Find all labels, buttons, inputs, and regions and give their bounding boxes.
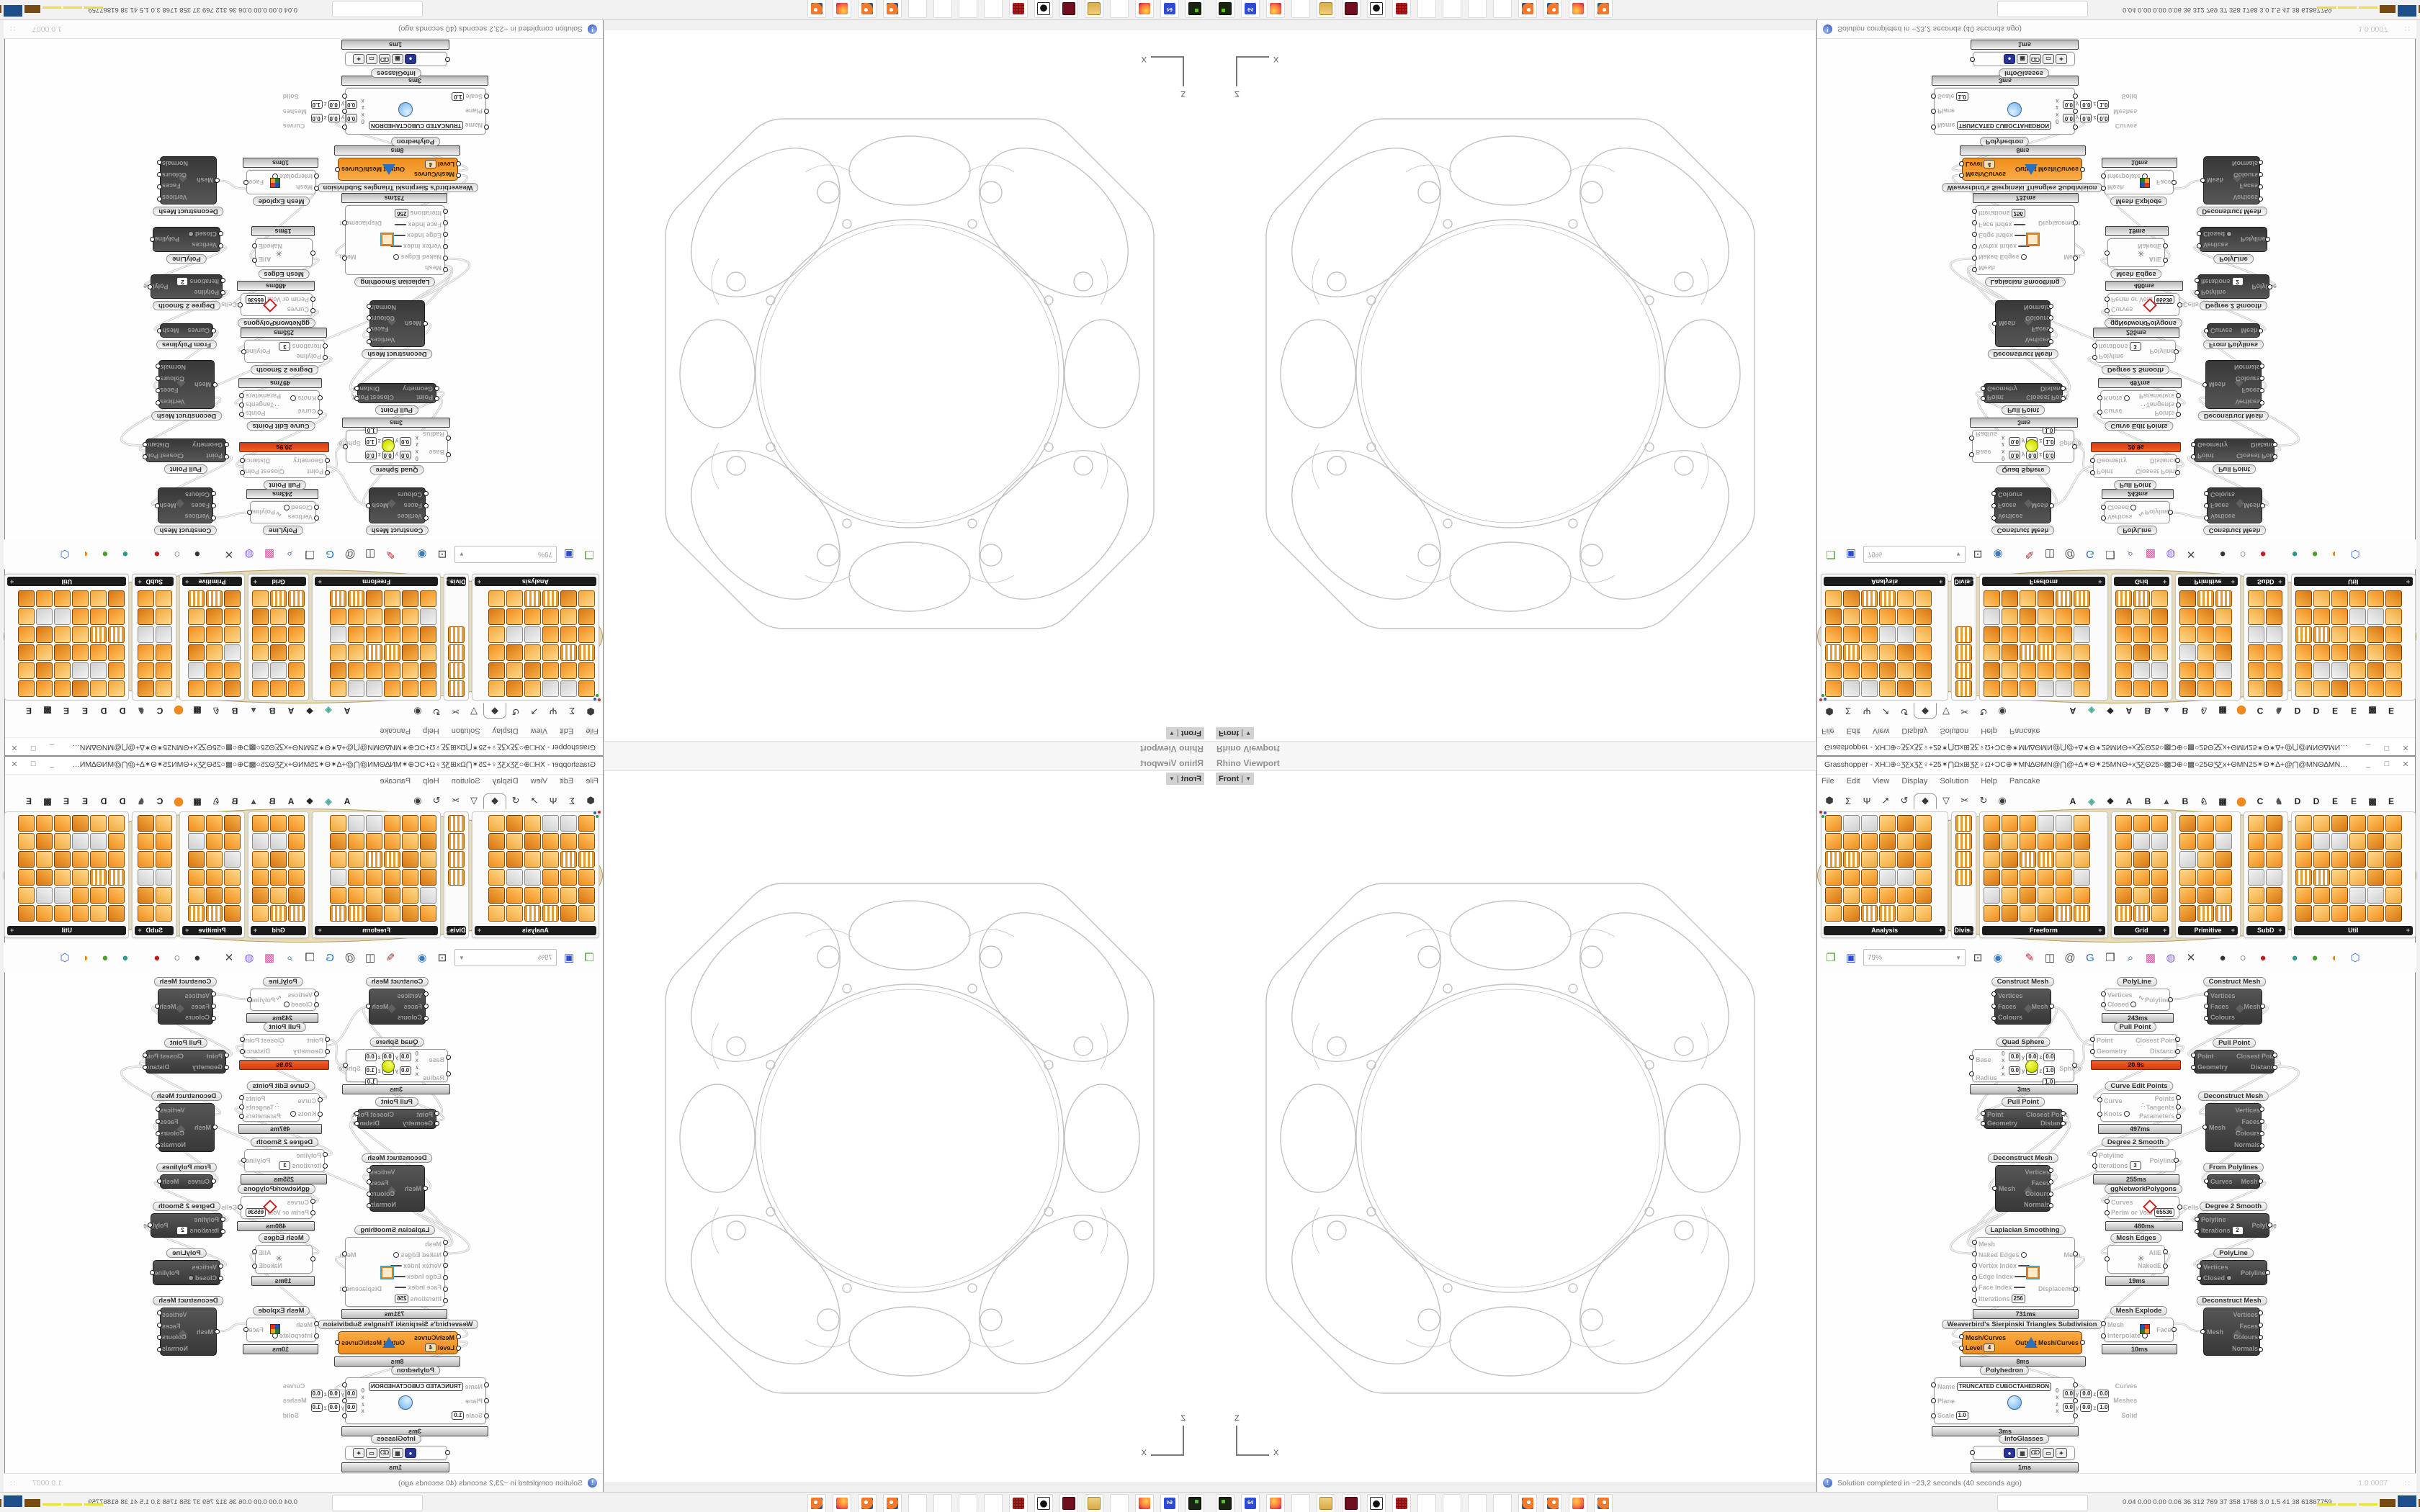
taskbar-icon-floppy-64[interactable]: 64 xyxy=(1241,1494,1260,1512)
component-icon[interactable] xyxy=(488,680,505,697)
value-box[interactable]: 0.0 xyxy=(311,114,323,122)
gh-node-pull-point[interactable]: PointGeometryClosest PointDistance xyxy=(1984,383,2063,403)
component-icon[interactable] xyxy=(2266,626,2282,643)
component-icon[interactable] xyxy=(348,626,364,643)
component-icon[interactable] xyxy=(578,626,595,643)
component-tab-7[interactable]: ✂ xyxy=(446,795,465,809)
component-icon[interactable] xyxy=(2349,644,2366,661)
component-icon[interactable] xyxy=(1984,815,2000,832)
plugin-tab-12[interactable]: D xyxy=(2288,703,2307,716)
gh-node-from-polylines[interactable]: CurvesMesh xyxy=(2207,1174,2260,1189)
menu-item-help[interactable]: Help xyxy=(423,726,439,735)
component-icon[interactable] xyxy=(1825,680,1842,697)
component-icon[interactable] xyxy=(2038,833,2054,850)
component-icon[interactable] xyxy=(2074,905,2090,922)
component-icon[interactable] xyxy=(2115,815,2132,832)
gh-node-degree-2-smooth[interactable]: PolylineIterations3Polyline xyxy=(2095,340,2176,363)
component-icon[interactable] xyxy=(252,869,269,886)
component-icon[interactable] xyxy=(2215,662,2232,679)
component-icon[interactable] xyxy=(270,662,287,679)
wires-icon[interactable]: ✕ xyxy=(2183,950,2199,966)
component-icon[interactable] xyxy=(2197,887,2214,904)
component-icon[interactable] xyxy=(1879,815,1896,832)
component-icon[interactable] xyxy=(1879,626,1896,643)
component-icon[interactable] xyxy=(138,905,154,922)
input-port[interactable] xyxy=(224,454,229,459)
gh-node-deconstruct-mesh[interactable]: MeshVerticesFacesColoursNormals xyxy=(1995,300,2051,347)
component-icon[interactable] xyxy=(2197,680,2214,697)
input-port[interactable] xyxy=(2197,231,2202,236)
output-port[interactable] xyxy=(367,1203,372,1208)
component-icon[interactable] xyxy=(420,680,436,697)
save-file-icon[interactable]: ▣ xyxy=(561,950,577,966)
component-icon[interactable] xyxy=(2074,590,2090,607)
component-icon[interactable] xyxy=(138,626,154,643)
component-icon[interactable] xyxy=(348,608,364,625)
preview-wire-icon[interactable]: ○ xyxy=(2235,546,2251,562)
component-icon[interactable] xyxy=(524,608,541,625)
ball-half-icon[interactable]: ◐ xyxy=(77,950,93,966)
taskbar-icon-palette[interactable] xyxy=(1493,0,1512,18)
component-icon[interactable] xyxy=(1843,680,1860,697)
component-icon[interactable] xyxy=(2133,905,2150,922)
palette-panel-title[interactable]: Freeform+ xyxy=(1982,926,2105,935)
component-icon[interactable] xyxy=(224,833,241,850)
component-icon[interactable] xyxy=(506,833,523,850)
input-value-box[interactable]: 256 xyxy=(2012,1295,2025,1303)
palette-panel-title[interactable]: Analysis+ xyxy=(1824,926,1945,935)
menu-item-view[interactable]: View xyxy=(1873,726,1890,735)
component-icon[interactable] xyxy=(2115,680,2132,697)
panel-expand-icon[interactable]: + xyxy=(478,926,481,935)
save-file-icon[interactable]: ▣ xyxy=(1843,950,1859,966)
component-icon[interactable] xyxy=(36,590,53,607)
component-icon[interactable] xyxy=(1915,851,1932,868)
output-port[interactable] xyxy=(2080,1340,2085,1345)
plugin-tab-3[interactable]: A xyxy=(2120,796,2138,809)
input-port[interactable] xyxy=(2090,1049,2095,1054)
component-icon[interactable] xyxy=(188,644,205,661)
input-port[interactable] xyxy=(323,1164,328,1169)
component-icon[interactable] xyxy=(1915,905,1932,922)
component-icon[interactable] xyxy=(1825,887,1842,904)
case-icon[interactable]: ▭ xyxy=(2043,1448,2054,1458)
value-box[interactable]: 0.0 xyxy=(365,1053,377,1061)
preview-wire-icon[interactable]: ○ xyxy=(169,950,185,966)
output-port[interactable] xyxy=(239,1095,244,1100)
component-icon[interactable] xyxy=(2056,662,2072,679)
component-icon[interactable] xyxy=(2313,680,2330,697)
component-icon[interactable] xyxy=(2056,887,2072,904)
output-port[interactable] xyxy=(239,402,244,408)
input-port[interactable] xyxy=(212,1125,218,1130)
plugin-tab-16[interactable]: ▩ xyxy=(2363,796,2382,809)
component-icon[interactable] xyxy=(188,662,205,679)
gh-node-polyline[interactable]: VerticesClosedPolyline xyxy=(2104,501,2170,523)
ball-blue-hex-icon[interactable]: ⬡ xyxy=(2347,546,2363,562)
taskbar-active-button[interactable] xyxy=(332,1,423,17)
output-port[interactable] xyxy=(241,349,246,354)
input-port[interactable] xyxy=(218,231,223,236)
taskbar-icon-blender[interactable] xyxy=(883,1494,902,1512)
component-icon[interactable] xyxy=(2295,644,2312,661)
component-icon[interactable] xyxy=(2295,680,2312,697)
input-port[interactable] xyxy=(456,173,461,178)
component-icon[interactable] xyxy=(1843,815,1860,832)
input-value-box[interactable]: 4 xyxy=(1984,161,1995,169)
save-file-icon[interactable]: ▣ xyxy=(1843,546,1859,562)
taskbar-icon-terminal[interactable] xyxy=(1216,1494,1234,1512)
taskbar-icon-folder[interactable] xyxy=(1317,1494,1335,1512)
component-icon[interactable] xyxy=(1984,851,2000,868)
component-icon[interactable] xyxy=(2020,851,2036,868)
input-port[interactable] xyxy=(1931,1398,1936,1403)
component-icon[interactable] xyxy=(252,590,269,607)
input-port[interactable] xyxy=(2202,382,2208,387)
input-port[interactable] xyxy=(2204,1004,2209,1009)
input-port[interactable] xyxy=(2092,1152,2097,1157)
component-icon[interactable] xyxy=(2295,869,2312,886)
component-icon[interactable] xyxy=(2074,662,2090,679)
plugin-tab-15[interactable]: E xyxy=(57,796,76,809)
component-icon[interactable] xyxy=(384,662,400,679)
component-icon[interactable] xyxy=(2179,680,2196,697)
output-port[interactable] xyxy=(2073,94,2078,99)
value-box[interactable]: 1.0 xyxy=(2097,1403,2109,1412)
component-icon[interactable] xyxy=(560,590,577,607)
input-value-box[interactable]: TRUNCATED CUBOCTAHEDRON xyxy=(1957,1382,2051,1391)
input-value-box[interactable] xyxy=(2014,1287,2025,1288)
sketch-pen-icon[interactable]: ✎ xyxy=(382,546,398,562)
component-icon[interactable] xyxy=(1825,626,1842,643)
component-icon[interactable] xyxy=(330,905,346,922)
input-value-box[interactable]: 2 xyxy=(176,277,188,286)
input-port[interactable] xyxy=(1970,1450,1975,1455)
component-icon[interactable] xyxy=(1843,887,1860,904)
component-icon[interactable] xyxy=(2151,608,2168,625)
menu-item-edit[interactable]: Edit xyxy=(560,726,573,735)
component-icon[interactable] xyxy=(366,644,382,661)
output-port[interactable] xyxy=(2258,184,2263,189)
menu-item-edit[interactable]: Edit xyxy=(1847,777,1860,786)
palette-panel-title[interactable]: Divis…+ xyxy=(447,577,466,586)
component-icon[interactable] xyxy=(270,590,287,607)
gh-node-quad-sphere[interactable]: BaseRadius0 x0.0y0.0z0.0z x0.0y0.0z1.01.… xyxy=(346,430,448,463)
output-port[interactable] xyxy=(2259,401,2264,406)
component-icon[interactable] xyxy=(138,815,154,832)
component-icon[interactable] xyxy=(224,608,241,625)
component-icon[interactable] xyxy=(488,644,505,661)
component-icon[interactable] xyxy=(36,644,53,661)
component-icon[interactable] xyxy=(90,662,107,679)
output-port[interactable] xyxy=(2061,386,2066,391)
input-port[interactable] xyxy=(1972,1298,1977,1303)
taskbar-icon-calculator[interactable] xyxy=(1291,1494,1310,1512)
plugin-tab-6[interactable]: B xyxy=(2176,703,2195,716)
taskbar-icon-blender[interactable] xyxy=(807,1494,826,1512)
output-port[interactable] xyxy=(2072,1063,2077,1068)
component-icon[interactable] xyxy=(1984,644,2000,661)
output-port[interactable] xyxy=(354,386,359,391)
input-port[interactable] xyxy=(423,322,428,327)
input-port[interactable] xyxy=(445,1450,450,1455)
input-port[interactable] xyxy=(211,1179,216,1184)
maximize-button[interactable]: □ xyxy=(2382,743,2392,752)
output-port[interactable] xyxy=(2163,258,2168,263)
gh-node-deconstruct-mesh[interactable]: MeshVerticesFacesColoursNormals xyxy=(158,360,215,409)
component-tab-6[interactable]: ▽ xyxy=(465,795,483,809)
gh-node-polyline[interactable]: VerticesClosedPolyline xyxy=(2104,989,2170,1011)
component-tab-1[interactable]: Σ xyxy=(1839,796,1857,809)
resize-grip[interactable]: ∷ xyxy=(9,24,15,33)
value-box[interactable]: 0.0 xyxy=(346,100,357,109)
component-icon[interactable] xyxy=(18,887,35,904)
component-icon[interactable] xyxy=(348,887,364,904)
component-icon[interactable] xyxy=(36,662,53,679)
component-icon[interactable] xyxy=(2020,815,2036,832)
ball-half-icon[interactable]: ◐ xyxy=(2327,950,2343,966)
component-icon[interactable] xyxy=(90,590,107,607)
component-icon[interactable] xyxy=(2133,851,2150,868)
component-icon[interactable] xyxy=(1861,833,1878,850)
component-icon[interactable] xyxy=(330,680,346,697)
component-icon[interactable] xyxy=(188,626,205,643)
component-icon[interactable] xyxy=(36,815,53,832)
component-icon[interactable] xyxy=(2020,869,2036,886)
component-icon[interactable] xyxy=(1915,644,1932,661)
input-value-box[interactable]: 1.0 xyxy=(1956,93,1968,102)
output-port[interactable] xyxy=(2048,1203,2053,1208)
input-port[interactable] xyxy=(2097,1112,2102,1117)
component-icon[interactable] xyxy=(1984,887,2000,904)
input-port[interactable] xyxy=(211,1004,216,1009)
component-icon[interactable] xyxy=(448,833,465,850)
output-port[interactable] xyxy=(2260,503,2265,508)
component-icon[interactable] xyxy=(1825,662,1842,679)
output-port[interactable] xyxy=(354,1111,359,1116)
plugin-tab-17[interactable]: E xyxy=(2382,703,2401,716)
component-icon[interactable] xyxy=(2266,887,2282,904)
component-icon[interactable] xyxy=(72,608,89,625)
component-icon[interactable] xyxy=(270,887,287,904)
component-icon[interactable] xyxy=(542,815,559,832)
component-icon[interactable] xyxy=(2020,590,2036,607)
gh-node-infoglasses[interactable]: ●▦ᘯᘰ▭✦ xyxy=(345,52,447,66)
component-icon[interactable] xyxy=(156,590,172,607)
output-port[interactable] xyxy=(157,1347,162,1352)
component-icon[interactable] xyxy=(2056,905,2072,922)
component-icon[interactable] xyxy=(2151,869,2168,886)
open-file-icon[interactable]: ❐ xyxy=(581,950,597,966)
gh-node-quad-sphere[interactable]: BaseRadius0 x0.0y0.0z0.0z x0.0y0.0z1.01.… xyxy=(346,1049,448,1082)
plugin-tab-5[interactable]: ▲ xyxy=(2157,796,2176,809)
menu-item-file[interactable]: File xyxy=(586,777,599,786)
puzzle-icon[interactable]: ✦ xyxy=(353,1448,364,1458)
output-port[interactable] xyxy=(2258,1323,2263,1328)
component-icon[interactable] xyxy=(384,644,400,661)
component-icon[interactable] xyxy=(1861,662,1878,679)
component-icon[interactable] xyxy=(36,833,53,850)
zoom-extents-icon[interactable]: ⊡ xyxy=(434,950,450,966)
input-toggle[interactable] xyxy=(188,231,194,237)
component-icon[interactable] xyxy=(2349,608,2366,625)
gha-icon[interactable]: G xyxy=(2082,950,2098,966)
menu-item-solution[interactable]: Solution xyxy=(1940,726,1968,735)
component-icon[interactable] xyxy=(330,644,346,661)
value-box[interactable]: 0.0 xyxy=(346,114,357,122)
input-port[interactable] xyxy=(1959,1334,1964,1339)
output-port[interactable] xyxy=(2176,393,2181,398)
component-icon[interactable] xyxy=(1843,590,1860,607)
input-port[interactable] xyxy=(1981,1111,1986,1116)
balloon-icon[interactable]: ◍ xyxy=(2163,950,2179,966)
plugin-tab-4[interactable]: B xyxy=(2138,796,2157,809)
menu-item-edit[interactable]: Edit xyxy=(1847,726,1860,735)
taskbar-icon-palette[interactable] xyxy=(1468,0,1487,18)
plugin-tab-6[interactable]: B xyxy=(2176,796,2195,809)
plugin-tab-9[interactable]: ⬤ xyxy=(2232,796,2251,809)
output-port[interactable] xyxy=(343,444,348,449)
component-tab-0[interactable]: ⬢ xyxy=(581,795,600,809)
input-port[interactable] xyxy=(1972,267,1977,272)
preview-wire-icon[interactable]: ○ xyxy=(169,546,185,562)
component-icon[interactable] xyxy=(2313,662,2330,679)
sketch-toggle-icon[interactable]: ◫ xyxy=(2042,546,2058,562)
component-icon[interactable] xyxy=(54,608,71,625)
output-port[interactable] xyxy=(2260,1004,2265,1009)
ball-green-icon[interactable]: ● xyxy=(97,546,113,562)
palette-panel-title[interactable]: Grid+ xyxy=(2114,926,2170,935)
output-port[interactable] xyxy=(2163,1249,2168,1254)
input-value-box[interactable]: TRUNCATED CUBOCTAHEDRON xyxy=(1957,122,2051,130)
palette-panel-title[interactable]: Util+ xyxy=(7,577,126,586)
component-icon[interactable] xyxy=(2133,869,2150,886)
component-icon[interactable] xyxy=(2248,608,2264,625)
gha-icon[interactable]: G xyxy=(2082,546,2098,562)
gh-node-pull-point[interactable]: PointGeometryClosest PointDistance xyxy=(357,383,436,403)
component-icon[interactable] xyxy=(72,590,89,607)
ball-green-icon[interactable]: ● xyxy=(97,950,113,966)
component-icon[interactable] xyxy=(1861,680,1878,697)
output-port[interactable] xyxy=(2267,1223,2272,1228)
taskbar-icon-palette[interactable] xyxy=(1493,1494,1512,1512)
component-icon[interactable] xyxy=(2038,905,2054,922)
component-icon[interactable] xyxy=(2179,833,2196,850)
output-port[interactable] xyxy=(239,393,244,398)
component-icon[interactable] xyxy=(2151,644,2168,661)
input-port[interactable] xyxy=(2195,1229,2200,1234)
component-icon[interactable] xyxy=(1843,851,1860,868)
component-icon[interactable] xyxy=(2197,626,2214,643)
component-icon[interactable] xyxy=(252,833,269,850)
gh-node-laplacian-smoothing[interactable]: MeshNaked EdgesVertex Index Edge Index F… xyxy=(1975,1237,2075,1307)
preview-off-icon[interactable]: ● xyxy=(2215,950,2231,966)
menu-item-help[interactable]: Help xyxy=(1981,777,1997,786)
gh-node-degree-2-smooth[interactable]: PolylineIterations2Polyline xyxy=(151,274,223,299)
input-value-box[interactable]: 3 xyxy=(279,343,290,351)
component-icon[interactable] xyxy=(578,887,595,904)
input-port[interactable] xyxy=(211,991,216,996)
component-icon[interactable] xyxy=(288,662,305,679)
chevron-down-icon[interactable]: ▼ xyxy=(459,955,465,961)
plugin-tab-12[interactable]: D xyxy=(113,703,132,716)
component-icon[interactable] xyxy=(402,608,418,625)
component-icon[interactable] xyxy=(348,644,364,661)
component-icon[interactable] xyxy=(1897,887,1914,904)
component-icon[interactable] xyxy=(384,608,400,625)
component-icon[interactable] xyxy=(1897,626,1914,643)
component-icon[interactable] xyxy=(90,869,107,886)
input-port[interactable] xyxy=(484,94,489,99)
value-box[interactable]: 0.0 xyxy=(400,1053,411,1061)
gh-node-quad-sphere[interactable]: BaseRadius0 x0.0y0.0z0.0z x0.0y0.0z1.01.… xyxy=(1972,430,2074,463)
panel-expand-icon[interactable]: + xyxy=(2278,577,2282,586)
input-port[interactable] xyxy=(443,1251,448,1256)
component-icon[interactable] xyxy=(90,815,107,832)
component-icon[interactable] xyxy=(2074,680,2090,697)
taskbar-icon-folder[interactable] xyxy=(1317,0,1335,18)
output-port[interactable] xyxy=(156,1119,161,1124)
component-icon[interactable] xyxy=(36,680,53,697)
component-tab-3[interactable]: ↗ xyxy=(525,703,544,717)
panel-expand-icon[interactable]: + xyxy=(2098,577,2102,586)
taskbar-icon-red-grid[interactable] xyxy=(1009,1494,1028,1512)
input-port[interactable] xyxy=(1969,1071,1974,1076)
input-port[interactable] xyxy=(443,232,448,237)
palette-panel-title[interactable]: Grid+ xyxy=(251,577,307,586)
component-icon[interactable] xyxy=(2151,680,2168,697)
input-port[interactable] xyxy=(446,1055,451,1060)
component-icon[interactable] xyxy=(72,626,89,643)
value-box[interactable]: 0.0 xyxy=(328,114,340,122)
component-icon[interactable] xyxy=(188,851,205,868)
component-icon[interactable] xyxy=(2002,590,2018,607)
component-icon[interactable] xyxy=(524,815,541,832)
output-port[interactable] xyxy=(157,1335,162,1340)
close-button[interactable]: ✕ xyxy=(2401,743,2411,752)
taskbar-icon-firefox[interactable] xyxy=(833,1494,851,1512)
input-port[interactable] xyxy=(1959,161,1964,166)
component-icon[interactable] xyxy=(2215,851,2232,868)
component-icon[interactable] xyxy=(2115,869,2132,886)
component-icon[interactable] xyxy=(488,608,505,625)
input-port[interactable] xyxy=(215,179,220,184)
output-port[interactable] xyxy=(239,1104,244,1110)
input-value-box[interactable] xyxy=(394,1276,405,1277)
component-icon[interactable] xyxy=(2074,644,2090,661)
component-icon[interactable] xyxy=(1915,680,1932,697)
preview-wire-icon[interactable]: ○ xyxy=(2235,950,2251,966)
component-icon[interactable] xyxy=(1897,833,1914,850)
component-icon[interactable] xyxy=(2056,869,2072,886)
component-icon[interactable] xyxy=(36,905,53,922)
component-icon[interactable] xyxy=(2266,590,2282,607)
value-box[interactable]: 1.0 xyxy=(365,1066,377,1075)
component-icon[interactable] xyxy=(1955,833,1972,850)
value-box[interactable]: 0.0 xyxy=(2080,1403,2092,1412)
value-box[interactable]: 0.0 xyxy=(311,1390,323,1398)
component-icon[interactable] xyxy=(224,887,241,904)
output-port[interactable] xyxy=(367,339,372,344)
component-icon[interactable] xyxy=(2151,905,2168,922)
value-box[interactable]: 0.0 xyxy=(346,1403,357,1412)
component-icon[interactable] xyxy=(366,608,382,625)
palette-panel-title[interactable]: Divis…+ xyxy=(1954,926,1973,935)
component-icon[interactable] xyxy=(2215,887,2232,904)
component-icon[interactable] xyxy=(2331,644,2348,661)
component-icon[interactable] xyxy=(252,905,269,922)
panel-expand-icon[interactable]: + xyxy=(2406,577,2410,586)
